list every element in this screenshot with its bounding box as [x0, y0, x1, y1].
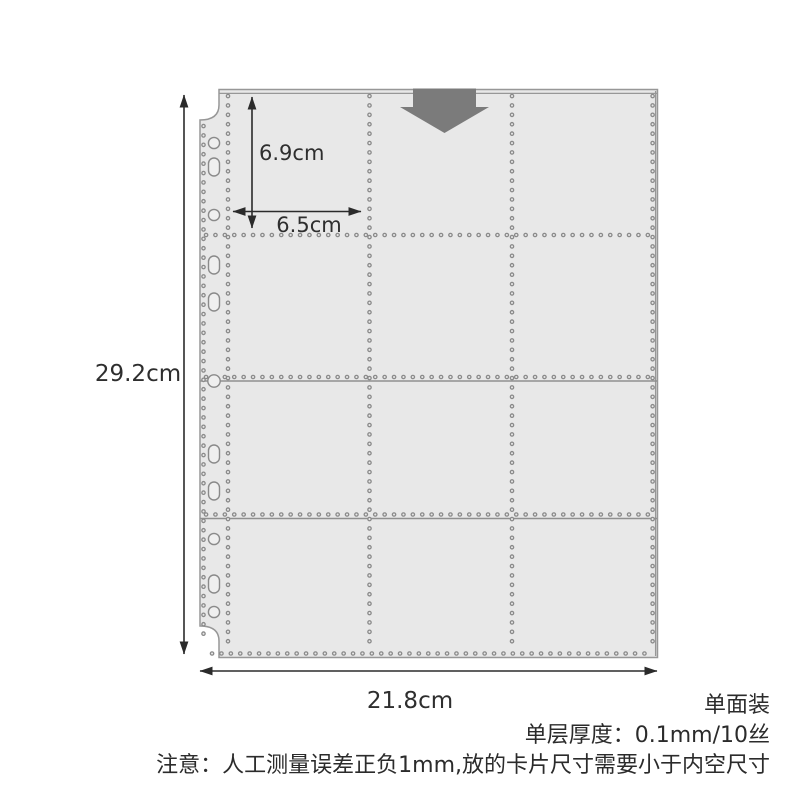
product-diagram-canvas: 29.2cm 21.8cm 6.9cm 6.5cm 单面装 单层厚度：0.1mm… — [0, 0, 800, 800]
caution-label: 注意：人工测量误差正负1mm,放的卡片尺寸需要小于内空尺寸 — [156, 753, 770, 778]
round-hole — [208, 533, 219, 544]
slot-hole — [209, 256, 220, 274]
pocket-sheet — [200, 90, 658, 658]
slot-hole — [209, 445, 220, 463]
pocket-width-label: 6.5cm — [276, 213, 341, 237]
round-hole — [208, 137, 219, 148]
slot-hole — [209, 293, 220, 311]
binder-page-diagram: 29.2cm 21.8cm 6.9cm 6.5cm 单面装 单层厚度：0.1mm… — [0, 0, 800, 800]
sheet-outline — [200, 90, 658, 658]
slot-hole — [209, 482, 220, 500]
pocket-height-label: 6.9cm — [259, 141, 324, 165]
slot-hole — [209, 158, 220, 176]
slot-hole — [209, 575, 220, 593]
product-notes: 单面装 单层厚度：0.1mm/10丝 注意：人工测量误差正负1mm,放的卡片尺寸… — [156, 693, 770, 778]
page-width-label: 21.8cm — [367, 688, 453, 714]
round-hole — [208, 606, 219, 617]
round-hole — [208, 209, 219, 220]
side-type-label: 单面装 — [704, 693, 770, 718]
round-hole — [208, 375, 220, 387]
page-height-label: 29.2cm — [95, 361, 181, 387]
thickness-label: 单层厚度：0.1mm/10丝 — [525, 723, 770, 748]
